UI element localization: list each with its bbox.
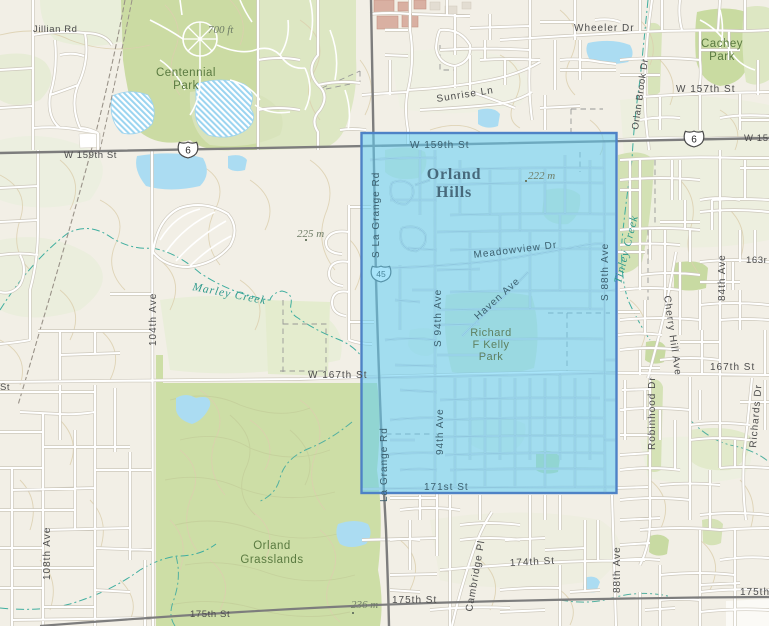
svg-text:700 ft: 700 ft <box>208 24 234 36</box>
svg-text:104th Ave: 104th Ave <box>148 293 159 346</box>
svg-text:175th St: 175th St <box>392 595 437 606</box>
svg-text:175th St: 175th St <box>190 609 230 620</box>
svg-text:84th Ave: 84th Ave <box>717 254 728 301</box>
svg-text:167th St: 167th St <box>710 362 755 373</box>
svg-text:Centennial: Centennial <box>156 67 216 79</box>
svg-text:88th Ave: 88th Ave <box>612 546 623 593</box>
svg-text:Hills: Hills <box>436 184 472 201</box>
svg-text:W 159th St: W 159th St <box>410 140 469 151</box>
svg-text:Orland: Orland <box>253 540 291 552</box>
svg-text:222 m: 222 m <box>528 170 555 182</box>
svg-text:Jillian Rd: Jillian Rd <box>33 24 78 35</box>
svg-text:225 m: 225 m <box>297 228 324 240</box>
svg-text:Park: Park <box>173 80 199 92</box>
svg-text:94th Ave: 94th Ave <box>435 408 446 455</box>
svg-text:Cachey: Cachey <box>701 38 743 50</box>
svg-text:171st St: 171st St <box>424 482 469 493</box>
svg-text:163r: 163r <box>746 255 767 266</box>
svg-text:S 94th Ave: S 94th Ave <box>433 289 444 347</box>
svg-text:Richard: Richard <box>470 327 511 339</box>
svg-text:W 157th St: W 157th St <box>676 84 735 95</box>
svg-text:236 m: 236 m <box>351 599 378 611</box>
svg-text:W 159th St: W 159th St <box>64 150 117 161</box>
svg-text:La Grange Rd: La Grange Rd <box>379 427 390 502</box>
svg-text:Wheeler Dr: Wheeler Dr <box>574 23 635 34</box>
svg-text:6: 6 <box>691 134 697 145</box>
svg-text:W 167th St: W 167th St <box>308 370 367 381</box>
svg-text:F Kelly: F Kelly <box>472 339 509 351</box>
svg-text:S La Grange Rd: S La Grange Rd <box>371 172 382 258</box>
svg-text:W 15: W 15 <box>744 133 769 144</box>
svg-text:Grasslands: Grasslands <box>240 554 303 566</box>
svg-text:Park: Park <box>709 51 735 63</box>
svg-text:108th Ave: 108th Ave <box>42 527 53 580</box>
svg-text:Park: Park <box>479 351 504 363</box>
svg-text:St: St <box>0 382 10 393</box>
svg-text:S 88th Ave: S 88th Ave <box>600 243 611 301</box>
svg-text:Orland: Orland <box>427 166 482 183</box>
svg-text:6: 6 <box>185 145 191 156</box>
svg-text:175th: 175th <box>740 587 769 598</box>
svg-text:Robinhood Dr: Robinhood Dr <box>647 376 658 450</box>
